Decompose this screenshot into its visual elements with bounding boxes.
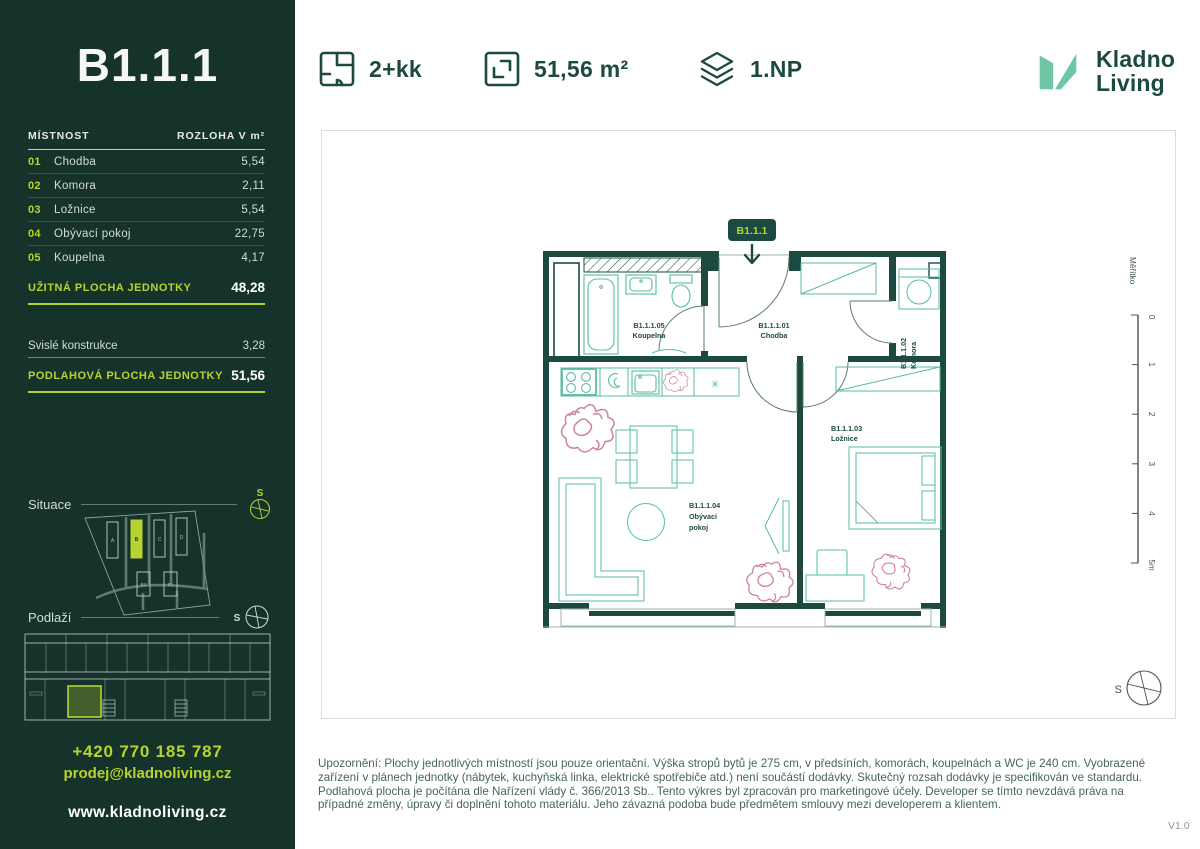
- svg-text:2: 2: [1147, 412, 1156, 417]
- svg-text:S: S: [1115, 684, 1122, 696]
- col-room: MÍSTNOST: [28, 130, 89, 142]
- svg-text:Chodba: Chodba: [761, 331, 789, 340]
- label-koupelna: B1.1.1.05 Koupelna: [633, 321, 667, 340]
- phone-link[interactable]: +420 770 185 787: [72, 742, 222, 761]
- floor-value: 1.NP: [750, 56, 802, 83]
- kitchen-sink: [632, 371, 659, 394]
- room-area: 4,17: [241, 252, 265, 264]
- room-number: 02: [28, 180, 54, 192]
- website-link[interactable]: www.kladnoliving.cz: [68, 804, 227, 821]
- vertical-construction-row: Svislé konstrukce 3,28: [28, 335, 265, 358]
- room-name: Komora: [54, 180, 242, 192]
- svg-text:B: B: [135, 537, 139, 543]
- coffee-table: [628, 504, 665, 541]
- table-row: 04 Obývací pokoj 22,75: [28, 222, 265, 246]
- svg-text:1: 1: [1147, 362, 1156, 367]
- dresser-and-stool: [806, 550, 864, 601]
- vertical-construction-label: Svislé konstrukce: [28, 340, 117, 352]
- label-chodba: B1.1.1.01 Chodba: [758, 321, 789, 340]
- sidebar: B1.1.1 MÍSTNOST ROZLOHA V m² 01 Chodba 5…: [0, 0, 295, 849]
- sofa: [559, 478, 644, 601]
- scale-ruler: Měřítko 0 1 2 3 4: [1128, 257, 1156, 571]
- room-name: Obývací pokoj: [54, 228, 235, 240]
- kitchen-hook: [609, 374, 620, 388]
- duct-shaft: [554, 263, 579, 359]
- usable-area-label: UŽITNÁ PLOCHA JEDNOTKY: [28, 282, 191, 294]
- boiler-symbol: ✳: [710, 379, 719, 391]
- spec-layout: 2+kk: [318, 50, 422, 88]
- room-number: 04: [28, 228, 54, 240]
- window-living: [589, 611, 735, 616]
- disclaimer-text: Upozornění: Plochy jednotlivých místnost…: [318, 757, 1156, 812]
- spec-area: 51,56 m²: [483, 50, 628, 88]
- svg-text:Koupelna: Koupelna: [633, 331, 667, 340]
- toilet: [670, 275, 692, 307]
- window-bedroom: [825, 611, 921, 616]
- room-name: Koupelna: [54, 252, 241, 264]
- main-content: 2+kk 51,56 m² 1.NP: [295, 0, 1200, 849]
- floor-area-value: 51,56: [231, 368, 265, 383]
- svg-text:5m: 5m: [1147, 559, 1156, 571]
- table-row: 01 Chodba 5,54: [28, 150, 265, 174]
- site-roads: [96, 514, 208, 610]
- layout-value: 2+kk: [369, 56, 422, 83]
- svg-text:D: D: [180, 535, 184, 541]
- stove: [562, 369, 596, 395]
- svg-text:Obývací: Obývací: [689, 512, 718, 521]
- entrance-arrow-icon: [745, 245, 759, 263]
- svg-text:B2: B2: [141, 582, 147, 587]
- contact-block: +420 770 185 787 prodej@kladnoliving.cz …: [0, 742, 295, 822]
- email-link[interactable]: prodej@kladnoliving.cz: [64, 765, 232, 782]
- table-row: 02 Komora 2,11: [28, 174, 265, 198]
- site-building-labels: A B C D B2 B1: [111, 535, 184, 587]
- svg-text:B1.1.1.01: B1.1.1.01: [758, 321, 789, 330]
- room-area: 5,54: [241, 156, 265, 168]
- table-row: 03 Ložnice 5,54: [28, 198, 265, 222]
- room-number: 03: [28, 204, 54, 216]
- label-obyvaci-pokoj: B1.1.1.04 Obývací pokoj: [689, 501, 720, 532]
- spec-floor: 1.NP: [697, 50, 802, 88]
- svg-text:4: 4: [1147, 511, 1156, 516]
- room-number: 01: [28, 156, 54, 168]
- svg-text:C: C: [158, 537, 162, 543]
- room-area: 5,54: [241, 204, 265, 216]
- bedroom-wardrobe: [836, 367, 940, 391]
- dining-set: [616, 426, 693, 488]
- tv: [765, 498, 789, 554]
- svg-text:B1.1.1: B1.1.1: [737, 225, 768, 237]
- bathtub: [584, 275, 618, 354]
- svg-text:B1.1.1.05: B1.1.1.05: [633, 321, 664, 330]
- kladno-living-logo-icon: [1032, 45, 1084, 97]
- washing-machine: [899, 269, 939, 309]
- room-number: 05: [28, 252, 54, 264]
- svg-text:B1.1.1.04: B1.1.1.04: [689, 501, 720, 510]
- installation-shaft-hatch: [584, 258, 706, 272]
- label-loznice: B1.1.1.03 Ložnice: [831, 424, 862, 443]
- room-table-header: MÍSTNOST ROZLOHA V m²: [28, 130, 265, 150]
- svg-text:3: 3: [1147, 462, 1156, 467]
- bath-mat: [652, 350, 686, 354]
- svg-text:0: 0: [1147, 315, 1156, 320]
- brand-line1: Kladno: [1096, 47, 1175, 71]
- floorplan-icon: [318, 50, 356, 88]
- svg-text:B1: B1: [168, 582, 174, 587]
- floor-icon: [697, 50, 737, 88]
- divider: [81, 617, 219, 618]
- page-title: B1.1.1: [0, 38, 295, 92]
- unit-badge: B1.1.1: [728, 219, 776, 263]
- room-name: Ložnice: [54, 204, 241, 216]
- table-row: 05 Koupelna 4,17: [28, 246, 265, 270]
- floor-area-label: PODLAHOVÁ PLOCHA JEDNOTKY: [28, 370, 223, 382]
- floorplan-sheet: B1.1.1 MÍSTNOST ROZLOHA V m² 01 Chodba 5…: [0, 0, 1200, 849]
- svg-text:Komora: Komora: [909, 341, 918, 369]
- area-icon: [483, 50, 521, 88]
- version-label: V1.0: [1168, 820, 1190, 832]
- brand-logo: Kladno Living: [1032, 45, 1175, 97]
- room-name: Chodba: [54, 156, 241, 168]
- label-komora: B1.1.1.02 Komora: [899, 338, 918, 369]
- svg-text:pokoj: pokoj: [689, 523, 708, 532]
- svg-text:B1.1.1.02: B1.1.1.02: [899, 338, 908, 369]
- floorplan-frame: ✳: [321, 130, 1176, 719]
- bed: [849, 447, 941, 529]
- svg-text:B1.1.1.03: B1.1.1.03: [831, 424, 862, 433]
- floor-mini-plan: [0, 622, 295, 724]
- decor-plants: [562, 370, 918, 608]
- svg-text:Měřítko: Měřítko: [1128, 257, 1137, 285]
- plan-compass-icon: S: [1115, 671, 1161, 705]
- room-table: MÍSTNOST ROZLOHA V m² 01 Chodba 5,54 02 …: [28, 130, 265, 393]
- floorplan-drawing: ✳: [322, 131, 1177, 720]
- usable-area-row: UŽITNÁ PLOCHA JEDNOTKY 48,28: [28, 270, 265, 305]
- room-area: 2,11: [242, 180, 265, 192]
- floor-area-row: PODLAHOVÁ PLOCHA JEDNOTKY 51,56: [28, 358, 265, 393]
- svg-text:A: A: [111, 538, 115, 544]
- bathroom-sink: [626, 275, 656, 294]
- svg-text:Ložnice: Ložnice: [831, 434, 858, 443]
- room-area: 22,75: [235, 228, 265, 240]
- highlighted-unit: [68, 686, 101, 717]
- col-area: ROZLOHA V m²: [177, 130, 265, 142]
- brand-name: Kladno Living: [1096, 47, 1175, 95]
- vertical-construction-value: 3,28: [243, 340, 265, 352]
- hall-wardrobe: [801, 263, 876, 294]
- usable-area-value: 48,28: [231, 280, 265, 295]
- brand-line2: Living: [1096, 71, 1175, 95]
- area-value: 51,56 m²: [534, 56, 628, 83]
- stair-shafts: [103, 700, 187, 716]
